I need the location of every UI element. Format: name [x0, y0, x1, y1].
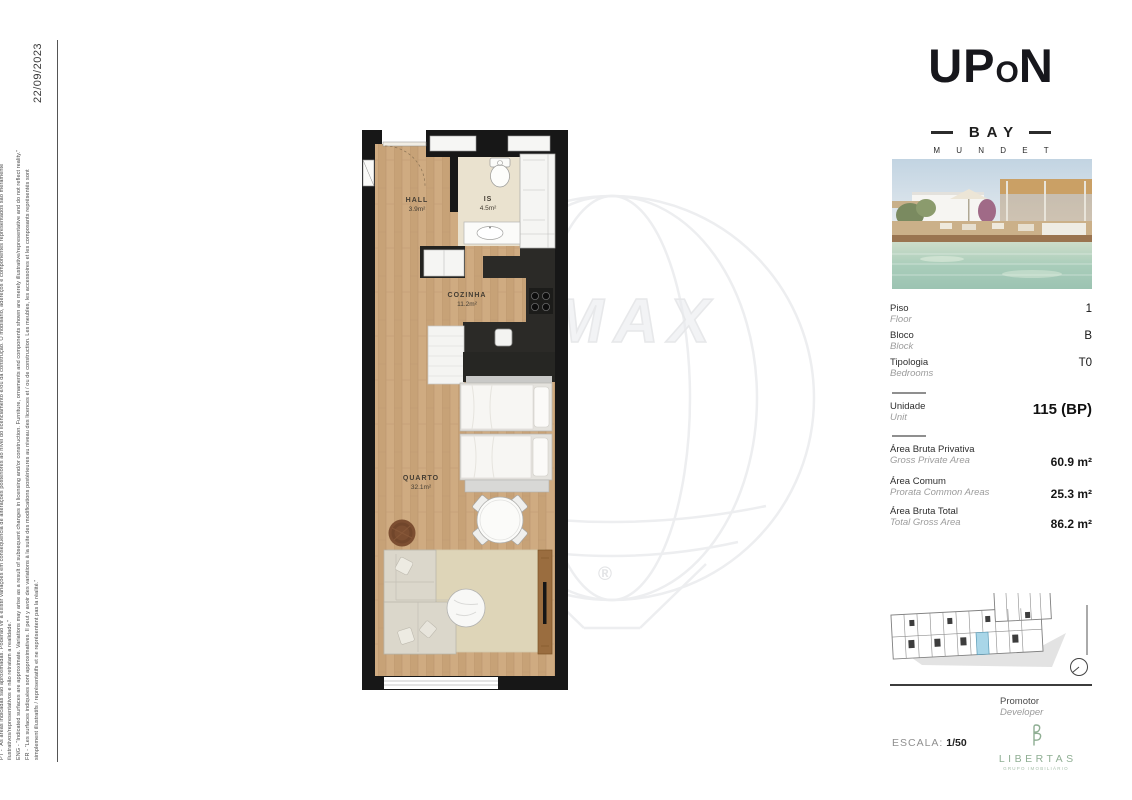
footer-rule — [890, 684, 1092, 686]
area-total-value: 86.2 m² — [1051, 517, 1092, 531]
disclaimer-line-fr: FR - “Les surfaces indiquées sont approx… — [25, 169, 32, 760]
headboard — [466, 376, 552, 383]
floor-plan-sheet: 22/09/2023 PT - “As áreas indicadas são … — [0, 0, 1132, 800]
entry-closet — [430, 136, 476, 151]
promoter-sublabel: Developer — [1000, 707, 1043, 718]
floor-plan: HALL3.9m² IS4.5m² COZINHA11.2m² QUARTO32… — [362, 130, 568, 690]
bed-1 — [460, 383, 552, 431]
highlighted-unit — [976, 632, 989, 655]
room-label-cozinha: COZINHA11.2m² — [448, 292, 487, 309]
wardrobe — [520, 154, 555, 248]
logo-tagline: M U N D E T — [890, 146, 1092, 155]
area-privativa-label: Área Bruta Privativa — [890, 444, 1092, 455]
bottom-window — [384, 677, 498, 689]
area-comum-value: 25.3 m² — [1051, 487, 1092, 501]
kitchen-sink — [495, 329, 512, 346]
room-label-hall: HALL3.9m² — [406, 197, 429, 214]
disclaimer-line-pt: PT - “As áreas indicadas são aproximadas… — [0, 164, 6, 760]
watermark-max-text: MAX — [552, 286, 720, 357]
logo-bay-row: BAY — [890, 124, 1092, 141]
disclaimer-line-eng: ENG - “Indicated surfaces are approximat… — [16, 150, 23, 760]
bloco-label: Bloco — [890, 330, 1092, 341]
area-total-label: Área Bruta Total — [890, 506, 1092, 517]
tipologia-label: Tipologia — [890, 357, 1092, 368]
sideboard — [465, 480, 549, 492]
promoter-block: Promotor Developer — [1000, 696, 1043, 718]
dining-table — [472, 495, 528, 546]
tipologia-sublabel: Bedrooms — [890, 368, 1092, 379]
project-photo — [892, 159, 1092, 289]
scale-label: ESCALA: — [892, 737, 943, 749]
logo-up: UP — [928, 39, 995, 92]
piso-sublabel: Floor — [890, 314, 1092, 325]
detail-row-area-comum: Área Comum Prorata Common Areas 25.3 m² — [890, 476, 1092, 502]
promoter-label: Promotor — [1000, 696, 1043, 707]
area-privativa-value: 60.9 m² — [1051, 455, 1092, 469]
bed-2 — [460, 434, 552, 480]
room-label-is: IS4.5m² — [480, 196, 497, 213]
tv-console — [538, 550, 552, 654]
dash-left — [931, 131, 953, 134]
disclaimer-line-pt2: ilustrativos/representativos e não retra… — [7, 620, 14, 760]
unidade-value: 115 (BP) — [1033, 401, 1092, 418]
logo-n: N — [1019, 39, 1054, 92]
keyplan-side-bar — [1086, 605, 1088, 655]
detail-row-area-total: Área Bruta Total Total Gross Area 86.2 m… — [890, 506, 1092, 532]
building-key-plan — [890, 593, 1092, 681]
round-rug — [389, 520, 416, 547]
bloco-value: B — [1084, 330, 1092, 342]
top-closet — [508, 136, 550, 151]
developer-tagline: GRUPO IMOBILIÁRIO — [990, 766, 1082, 771]
bathroom-sink — [464, 222, 520, 244]
left-border-line — [57, 40, 58, 762]
room-label-quarto: QUARTO32.1m² — [403, 475, 439, 492]
disclaimer-line-fr2: simplement illustratifs / représentatifs… — [34, 580, 41, 760]
piso-label: Piso — [890, 303, 1092, 314]
logo-o: O — [996, 56, 1019, 89]
coffee-table — [447, 589, 485, 627]
area-comum-label: Área Comum — [890, 476, 1092, 487]
toilet — [490, 158, 510, 187]
libertas-leaf-icon — [1027, 724, 1045, 746]
north-arrow — [1071, 659, 1088, 676]
electrical-panel — [363, 160, 374, 186]
logo-bay: BAY — [962, 124, 1020, 141]
date-stamp: 22/09/2023 — [32, 43, 45, 103]
detail-row-piso: Piso Floor 1 — [890, 303, 1092, 327]
cooktop — [529, 288, 553, 314]
divider — [892, 392, 926, 394]
bloco-sublabel: Block — [890, 341, 1092, 352]
divider — [892, 435, 926, 437]
detail-row-bloco: Bloco Block B — [890, 330, 1092, 354]
watermark-registered-mark: ® — [598, 564, 612, 586]
tipologia-value: T0 — [1079, 357, 1092, 369]
developer-name: LIBERTAS — [990, 753, 1082, 765]
scale-indicator: ESCALA: 1/50 — [892, 737, 967, 749]
scale-value: 1/50 — [946, 737, 966, 749]
floor-plan-drawing — [362, 130, 568, 690]
detail-row-area-privativa: Área Bruta Privativa Gross Private Area … — [890, 444, 1092, 470]
detail-row-tipologia: Tipologia Bedrooms T0 — [890, 357, 1092, 381]
piso-value: 1 — [1086, 303, 1092, 315]
developer-logo: LIBERTAS GRUPO IMOBILIÁRIO — [990, 724, 1082, 771]
detail-row-unidade: Unidade Unit 115 (BP) — [890, 401, 1092, 425]
brand-logo: UPON — [890, 42, 1092, 90]
dash-right — [1029, 131, 1051, 134]
